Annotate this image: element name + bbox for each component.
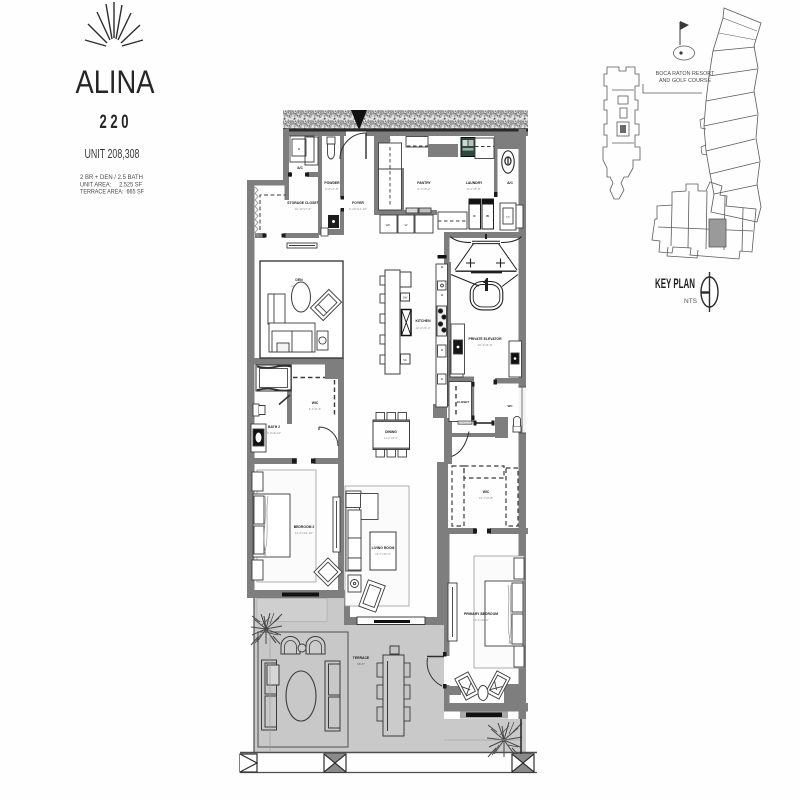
svg-text:BEDROOM 2: BEDROOM 2 <box>294 525 315 529</box>
svg-text:11'-4"x13'-10": 11'-4"x13'-10" <box>295 531 313 535</box>
svg-text:LAUNDRY: LAUNDRY <box>466 181 483 185</box>
svg-text:KEY PLAN: KEY PLAN <box>655 275 695 291</box>
svg-text:2 2 0: 2 2 0 <box>100 112 129 133</box>
svg-text:PRIVATE ELEVATOR: PRIVATE ELEVATOR <box>468 337 502 341</box>
svg-text:BOCA RATON RESORT: BOCA RATON RESORT <box>656 71 715 77</box>
svg-text:STORAGE CLOSET: STORAGE CLOSET <box>287 201 319 205</box>
svg-text:12'-4"x19'-8": 12'-4"x19'-8" <box>473 618 489 622</box>
svg-text:TERRACE AREA: 665 SF: TERRACE AREA: 665 SF <box>80 189 144 196</box>
svg-text:TERRACE: TERRACE <box>353 656 370 660</box>
svg-text:UNIT 208,308: UNIT 208,308 <box>85 147 140 161</box>
svg-text:SK: SK <box>403 358 407 362</box>
svg-text:WC: WC <box>508 404 514 408</box>
svg-text:POWDER: POWDER <box>324 181 340 185</box>
svg-text:DEN: DEN <box>295 278 303 282</box>
svg-text:15'-7"x16'-5": 15'-7"x16'-5" <box>375 552 391 556</box>
svg-text:66'-5": 66'-5" <box>357 662 365 666</box>
svg-text:8'-1"x5'-8": 8'-1"x5'-8" <box>467 187 480 191</box>
svg-text:10'-10"x7'-6": 10'-10"x7'-6" <box>295 207 312 211</box>
svg-text:W: W <box>486 214 489 218</box>
svg-text:12'-4"x9'-4": 12'-4"x9'-4" <box>415 326 430 330</box>
svg-text:UNIT AREA: 2,525 SF: UNIT AREA: 2,525 SF <box>80 182 142 189</box>
svg-text:DW: DW <box>403 296 408 300</box>
svg-text:WF: WF <box>386 223 391 227</box>
svg-text:LIVING ROOM: LIVING ROOM <box>372 546 395 550</box>
svg-text:6'-7"x5'-2": 6'-7"x5'-2" <box>417 187 430 191</box>
svg-text:6'-10"x11'-10": 6'-10"x11'-10" <box>349 207 367 211</box>
svg-text:WIC: WIC <box>312 401 319 405</box>
svg-text:A/C: A/C <box>297 166 303 170</box>
svg-text:PRIMARY BEDROOM: PRIMARY BEDROOM <box>464 612 498 616</box>
svg-text:11'-2"x9'-2": 11'-2"x9'-2" <box>384 436 398 440</box>
svg-text:5'-6"x7'-8": 5'-6"x7'-8" <box>325 187 338 191</box>
svg-text:AND GOLF COURSE: AND GOLF COURSE <box>659 78 712 84</box>
svg-text:FS: FS <box>506 215 510 219</box>
svg-text:6'-1"x6'-8": 6'-1"x6'-8" <box>309 407 322 411</box>
svg-text:DINING: DINING <box>385 430 397 434</box>
svg-text:6'-0"x9'-10": 6'-0"x9'-10" <box>267 431 281 435</box>
svg-text:ALINA: ALINA <box>76 64 156 100</box>
svg-text:WIC: WIC <box>483 490 490 494</box>
svg-text:KITCHEN: KITCHEN <box>415 319 431 323</box>
svg-text:CLOSET: CLOSET <box>457 400 469 404</box>
svg-text:NTS: NTS <box>684 298 698 305</box>
svg-text:10'-4"x6'-9": 10'-4"x6'-9" <box>477 343 492 347</box>
svg-text:2 BR + DEN / 2.5 BATH: 2 BR + DEN / 2.5 BATH <box>80 174 143 181</box>
svg-text:W: W <box>405 223 408 227</box>
svg-text:A/C: A/C <box>507 181 513 185</box>
svg-text:BATH 2: BATH 2 <box>268 425 280 429</box>
svg-text:FOYER: FOYER <box>352 201 364 205</box>
svg-text:15'-7"x6'-8": 15'-7"x6'-8" <box>479 496 493 500</box>
svg-text:PANTRY: PANTRY <box>417 181 431 185</box>
